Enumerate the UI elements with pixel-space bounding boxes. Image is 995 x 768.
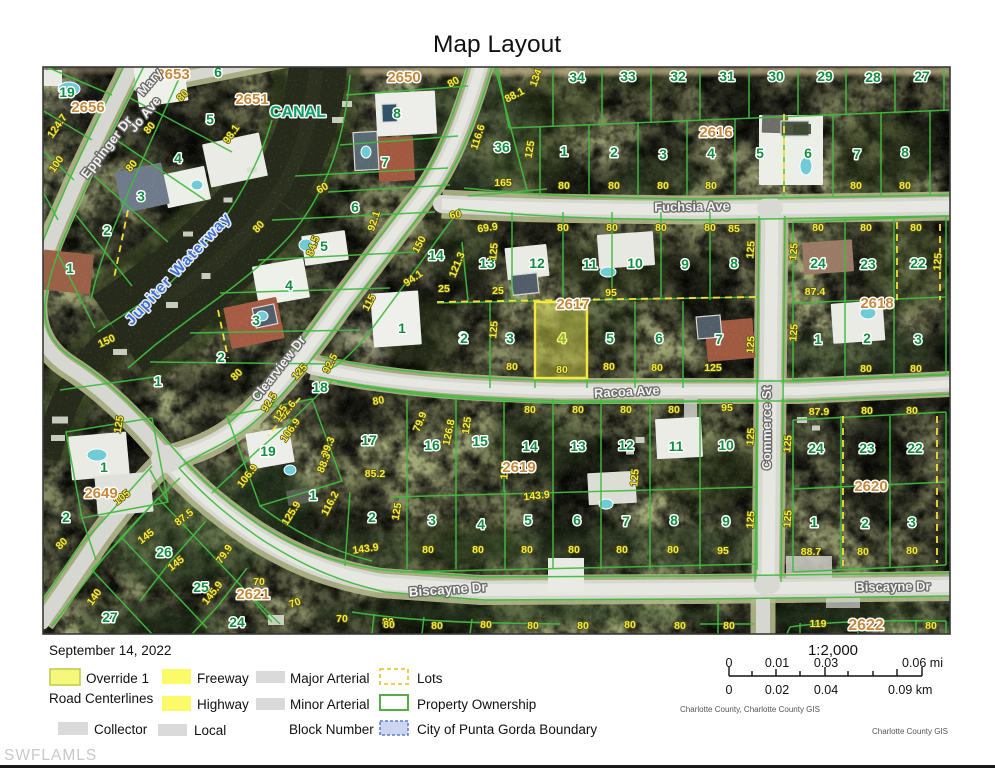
svg-text:2: 2 (103, 222, 111, 238)
svg-text:125: 125 (787, 242, 800, 261)
svg-text:80: 80 (705, 180, 717, 192)
svg-text:2620: 2620 (854, 478, 887, 495)
svg-text:80: 80 (383, 619, 395, 631)
svg-text:80: 80 (521, 544, 533, 556)
svg-text:19: 19 (260, 443, 276, 459)
svg-text:125: 125 (460, 416, 474, 435)
svg-text:4: 4 (174, 150, 182, 166)
svg-text:Commerce St: Commerce St (759, 385, 774, 469)
svg-text:1: 1 (398, 320, 406, 336)
svg-text:125: 125 (487, 242, 500, 261)
svg-text:0.03: 0.03 (814, 656, 838, 670)
svg-text:Charlotte County, Charlotte Co: Charlotte County, Charlotte County GIS (680, 705, 820, 714)
svg-text:25: 25 (492, 285, 504, 297)
svg-text:0.09 km: 0.09 km (888, 683, 932, 697)
svg-text:Override 1: Override 1 (86, 671, 149, 686)
svg-text:23: 23 (859, 440, 875, 456)
svg-text:80: 80 (606, 222, 618, 234)
svg-text:80: 80 (556, 364, 568, 376)
svg-text:23: 23 (860, 256, 876, 272)
svg-text:6: 6 (573, 512, 581, 528)
svg-text:5: 5 (756, 145, 764, 161)
svg-text:17: 17 (361, 432, 377, 448)
svg-text:19: 19 (59, 84, 75, 100)
svg-text:80: 80 (860, 363, 872, 375)
svg-text:119: 119 (810, 618, 827, 630)
svg-text:2651: 2651 (235, 91, 268, 108)
svg-text:80: 80 (372, 394, 386, 408)
svg-text:80: 80 (472, 544, 484, 556)
svg-text:14: 14 (428, 247, 444, 263)
svg-text:Charlotte County GIS: Charlotte County GIS (872, 727, 948, 736)
svg-text:5: 5 (206, 111, 214, 127)
svg-text:CANAL: CANAL (270, 104, 326, 121)
svg-text:27: 27 (102, 609, 118, 625)
svg-text:32: 32 (670, 68, 686, 84)
svg-text:80: 80 (723, 620, 735, 632)
svg-text:125: 125 (744, 510, 757, 529)
svg-text:80: 80 (667, 544, 679, 556)
svg-text:36: 36 (494, 139, 510, 155)
svg-text:1: 1 (100, 459, 108, 475)
svg-text:165: 165 (494, 177, 512, 189)
svg-text:15: 15 (472, 433, 488, 449)
svg-text:4: 4 (285, 277, 293, 293)
svg-text:125: 125 (704, 362, 722, 374)
svg-text:80: 80 (925, 620, 937, 632)
svg-text:85: 85 (728, 223, 740, 235)
svg-text:2: 2 (861, 515, 869, 531)
svg-text:0: 0 (726, 683, 733, 697)
svg-text:85.2: 85.2 (365, 468, 386, 480)
svg-text:29: 29 (817, 68, 833, 84)
svg-text:14: 14 (522, 438, 538, 454)
svg-text:5: 5 (606, 330, 614, 346)
svg-text:30: 30 (768, 68, 784, 84)
svg-text:11: 11 (583, 256, 598, 272)
svg-text:3: 3 (252, 312, 260, 328)
svg-text:80: 80 (431, 620, 443, 632)
svg-text:3: 3 (908, 514, 916, 530)
svg-text:2: 2 (460, 330, 468, 346)
svg-text:125: 125 (744, 335, 757, 354)
svg-text:60: 60 (449, 208, 463, 222)
svg-text:22: 22 (910, 255, 926, 271)
svg-text:87.4: 87.4 (805, 286, 826, 298)
svg-text:125: 125 (744, 427, 757, 446)
svg-text:95: 95 (721, 402, 733, 414)
svg-text:16: 16 (424, 437, 440, 453)
svg-text:2: 2 (62, 509, 70, 525)
svg-text:125: 125 (744, 240, 757, 259)
svg-text:80: 80 (616, 544, 628, 556)
svg-text:80: 80 (704, 222, 716, 234)
svg-text:Major Arterial: Major Arterial (290, 671, 370, 686)
svg-text:12: 12 (618, 437, 634, 453)
svg-text:7: 7 (381, 154, 389, 170)
svg-text:2650: 2650 (387, 69, 420, 86)
svg-text:80: 80 (524, 404, 536, 416)
svg-text:2: 2 (368, 509, 376, 525)
svg-text:13: 13 (570, 438, 586, 454)
svg-text:1: 1 (66, 260, 74, 276)
svg-text:80: 80 (480, 619, 492, 631)
svg-text:26: 26 (156, 544, 172, 560)
svg-text:24: 24 (810, 255, 826, 271)
svg-text:31: 31 (719, 68, 735, 84)
svg-text:2: 2 (863, 330, 871, 346)
svg-text:3: 3 (659, 146, 667, 162)
svg-text:Local: Local (194, 723, 226, 738)
svg-text:10: 10 (627, 255, 643, 271)
svg-text:33: 33 (620, 68, 636, 84)
svg-text:1: 1 (154, 373, 162, 389)
svg-text:2616: 2616 (699, 124, 732, 141)
svg-text:8: 8 (670, 512, 678, 528)
svg-text:11: 11 (669, 438, 684, 454)
svg-text:5: 5 (524, 512, 532, 528)
svg-text:0.01: 0.01 (765, 656, 789, 670)
svg-text:87.9: 87.9 (809, 406, 830, 418)
svg-text:125: 125 (787, 323, 800, 342)
svg-text:24: 24 (229, 614, 245, 630)
svg-text:34: 34 (569, 69, 585, 85)
svg-text:80: 80 (899, 180, 911, 192)
svg-text:6: 6 (351, 199, 359, 215)
svg-text:80: 80 (906, 545, 918, 557)
svg-text:80: 80 (657, 180, 669, 192)
svg-text:3: 3 (137, 188, 145, 204)
svg-text:Fuchsia Ave: Fuchsia Ave (654, 198, 730, 214)
svg-text:6: 6 (655, 330, 663, 346)
svg-text:8: 8 (730, 255, 738, 271)
svg-text:2619: 2619 (502, 459, 535, 476)
svg-text:125: 125 (781, 434, 794, 453)
svg-text:Highway: Highway (197, 697, 249, 712)
svg-text:9: 9 (722, 513, 730, 529)
svg-text:7: 7 (715, 331, 723, 347)
svg-text:1: 1 (814, 331, 822, 347)
svg-text:0.04: 0.04 (814, 683, 838, 697)
svg-text:2: 2 (610, 144, 618, 160)
svg-text:80: 80 (506, 361, 518, 373)
svg-text:95: 95 (605, 287, 617, 299)
svg-text:1: 1 (309, 487, 317, 503)
svg-text:80: 80 (608, 180, 620, 192)
svg-text:12: 12 (529, 255, 545, 271)
svg-text:2656: 2656 (71, 99, 104, 116)
svg-text:80: 80 (620, 404, 632, 416)
svg-text:7: 7 (853, 146, 861, 162)
svg-text:0.02: 0.02 (765, 683, 789, 697)
svg-text:25: 25 (438, 283, 450, 295)
svg-text:24: 24 (808, 440, 824, 456)
svg-text:Lots: Lots (417, 671, 443, 686)
svg-text:80: 80 (624, 619, 636, 631)
svg-text:80: 80 (674, 620, 686, 632)
svg-text:125: 125 (487, 320, 500, 339)
svg-text:1: 1 (810, 514, 818, 530)
svg-text:8: 8 (901, 144, 909, 160)
svg-text:Minor Arterial: Minor Arterial (290, 697, 370, 712)
svg-text:3: 3 (428, 512, 436, 528)
svg-text:70: 70 (336, 613, 348, 625)
svg-text:80: 80 (572, 404, 584, 416)
svg-text:2649: 2649 (84, 485, 117, 502)
svg-text:80: 80 (558, 180, 570, 192)
svg-text:Collector: Collector (94, 722, 148, 737)
svg-text:3: 3 (914, 331, 922, 347)
svg-text:80: 80 (906, 405, 918, 417)
svg-text:80: 80 (861, 405, 873, 417)
svg-text:2621: 2621 (236, 586, 269, 603)
svg-text:80: 80 (857, 546, 869, 558)
svg-text:28: 28 (865, 69, 881, 85)
svg-text:80: 80 (910, 222, 922, 234)
svg-text:80: 80 (655, 222, 667, 234)
svg-text:September 14, 2022: September 14, 2022 (49, 643, 171, 658)
svg-text:80: 80 (603, 361, 615, 373)
svg-text:4: 4 (477, 516, 485, 532)
svg-text:2617: 2617 (556, 296, 589, 313)
svg-text:6: 6 (804, 145, 812, 161)
svg-text:2622: 2622 (848, 617, 884, 634)
svg-text:10: 10 (718, 437, 734, 453)
svg-text:80: 80 (557, 222, 569, 234)
svg-text:9: 9 (681, 256, 689, 272)
svg-text:Freeway: Freeway (197, 671, 249, 686)
svg-text:95: 95 (717, 545, 729, 557)
svg-text:80: 80 (812, 222, 824, 234)
svg-text:80: 80 (850, 180, 862, 192)
svg-text:80: 80 (527, 620, 539, 632)
svg-text:125: 125 (781, 509, 794, 528)
svg-text:80: 80 (577, 620, 589, 632)
svg-text:Map Layout: Map Layout (433, 31, 561, 58)
svg-text:1: 1 (560, 143, 568, 159)
svg-text:7: 7 (622, 513, 630, 529)
svg-text:125: 125 (628, 468, 641, 487)
svg-text:4: 4 (558, 330, 566, 346)
svg-text:80: 80 (910, 363, 922, 375)
svg-text:80: 80 (651, 362, 663, 374)
svg-text:80: 80 (860, 222, 872, 234)
svg-text:2618: 2618 (860, 295, 893, 312)
svg-text:8: 8 (393, 105, 401, 121)
svg-text:80: 80 (422, 544, 434, 556)
svg-text:18: 18 (312, 379, 328, 395)
svg-text:City of Punta Gorda Boundary: City of Punta Gorda Boundary (417, 722, 597, 737)
svg-text:22: 22 (907, 440, 923, 456)
svg-text:125: 125 (931, 252, 944, 271)
svg-text:80: 80 (668, 404, 680, 416)
svg-text:SWFLAMLS: SWFLAMLS (4, 747, 97, 764)
svg-text:Block Number: Block Number (289, 722, 374, 737)
svg-text:88.7: 88.7 (801, 546, 822, 558)
svg-text:27: 27 (914, 68, 930, 84)
svg-text:3: 3 (506, 330, 514, 346)
svg-text:2: 2 (217, 349, 225, 365)
svg-text:80: 80 (568, 544, 580, 556)
svg-text:Road Centerlines: Road Centerlines (49, 691, 154, 706)
svg-text:Biscayne Dr: Biscayne Dr (855, 578, 930, 594)
svg-text:Property Ownership: Property Ownership (417, 697, 536, 712)
svg-text:4: 4 (707, 145, 715, 161)
